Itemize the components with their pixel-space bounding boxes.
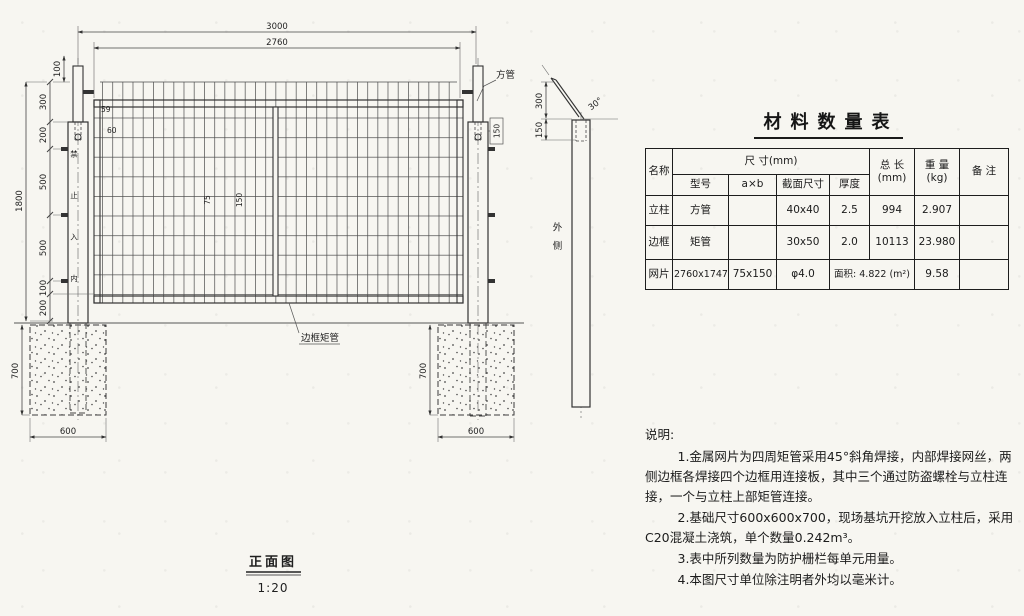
cell-axb [729,226,777,260]
concrete-footing-right [438,325,514,415]
outer-side-label: 外侧 [551,221,563,259]
dim-footing-depth-right: 700 [419,325,438,415]
anti-theft-bolt [488,213,495,217]
table-row: 边框 矩管 30x50 2.0 10113 23.980 [646,226,1009,260]
cell-remark [960,196,1009,226]
angled-top-arm [542,65,584,119]
cell-thickness: 2.0 [830,226,870,260]
dim-footing-width-right: 600 [438,418,514,442]
header-size-group: 尺 寸(mm) [673,149,870,175]
svg-text:600: 600 [60,427,76,437]
header-section: 截面尺寸 [777,175,830,196]
svg-text:1800: 1800 [15,190,25,212]
svg-text:150: 150 [535,122,545,138]
material-table: 名称 尺 寸(mm) 总 长 (mm) 重 量 (kg) 备 注 型号 a×b … [645,148,1009,290]
svg-text:100: 100 [39,280,49,296]
cell-section: 40x40 [777,196,830,226]
svg-text:600: 600 [468,427,484,437]
svg-text:200: 200 [39,127,49,143]
drawing-sheet: { "drawing": { "front_view": { "title": … [0,0,1024,616]
dim-side-angle: 30° [587,96,605,113]
view-title-block: 正面图 1:20 [246,555,301,595]
header-total-length: 总 长 (mm) [870,149,915,196]
dim-mesh-cell-height: 150 [235,193,244,208]
cell-total: 994 [870,196,915,226]
square-tube-label-text: 方管 [496,69,515,81]
header-weight: 重 量 (kg) [915,149,960,196]
frame-tube-label: 边框矩管 [289,303,340,344]
left-post-top-tube [73,66,83,122]
header-name: 名称 [646,149,673,196]
cell-area: 面积: 4.822 (m²) [830,260,915,290]
dim-footing-width-left: 600 [30,418,106,442]
plate-dim-150: 150 [488,118,503,144]
cell-axb: 75x150 [729,260,777,290]
cell-section: 30x50 [777,226,830,260]
anti-theft-bolt [488,147,495,151]
right-post-top-tube [473,66,483,122]
dim-left-chain: 300 200 500 500 100 200 [30,79,94,324]
dim-footing-depth-left: 700 [11,325,30,415]
center-stiffener-tube [273,107,278,296]
header-remark: 备 注 [960,149,1009,196]
svg-text:700: 700 [11,363,21,379]
dim-mesh-cell-width: 75 [203,195,212,205]
svg-text:700: 700 [419,363,429,379]
header-model: 型号 [673,175,729,196]
svg-text:2760: 2760 [266,38,288,48]
cell-model: 矩管 [673,226,729,260]
dim-side-arm: 300 [535,82,572,119]
cell-name: 立柱 [646,196,673,226]
header-axb: a×b [729,175,777,196]
side-post [572,120,590,407]
dim-plate-height: 150 [493,124,502,139]
svg-text:500: 500 [39,174,49,190]
cell-remark [960,226,1009,260]
side-view: 30° 300 150 外侧 [535,65,618,418]
frame-tube-label-text: 边框矩管 [301,332,339,344]
anti-theft-bolt [61,213,68,217]
svg-text:3000: 3000 [266,22,288,32]
post-marking-text: 禁止入内 [69,150,78,316]
svg-text:200: 200 [39,300,49,316]
svg-text:500: 500 [39,240,49,256]
anti-theft-bolt [61,279,68,283]
dim-offset-a: 59 [101,105,111,114]
svg-text:100: 100 [53,61,63,77]
svg-text:300: 300 [39,94,49,110]
top-connector [83,90,94,94]
cell-section: φ4.0 [777,260,830,290]
view-scale: 1:20 [258,581,289,595]
note-item-3: 3.表中所列数量为防护栅栏每单元用量。 [645,549,1017,569]
cell-axb [729,196,777,226]
cell-remark [960,260,1009,290]
dim-side-insert: 150 [535,119,576,140]
note-item-2: 2.基础尺寸600x600x700，现场基坑开挖放入立柱后，采用C20混凝土浇筑… [645,508,1017,548]
cell-model: 2760x1747 [673,260,729,290]
note-item-4: 4.本图尺寸单位除注明者外均以毫米计。 [645,570,1017,590]
notes-heading: 说明: [645,425,1017,445]
svg-text:300: 300 [535,93,545,109]
mesh-panel [94,82,463,303]
view-title: 正面图 [249,555,297,570]
header-weight-line2: (kg) [916,172,958,185]
notes-section: 说明: 1.金属网片为四周矩管采用45°斜角焊接，内部焊接网丝，两侧边框各焊接四… [645,424,1017,591]
table-row: 网片 2760x1747 75x150 φ4.0 面积: 4.822 (m²) … [646,260,1009,290]
concrete-footing-left [30,325,106,415]
cell-total: 10113 [870,226,915,260]
dim-top-offset: 100 [53,56,64,82]
cell-name: 边框 [646,226,673,260]
cell-model: 方管 [673,196,729,226]
cell-weight: 23.980 [915,226,960,260]
anti-theft-bolt [488,279,495,283]
header-thickness: 厚度 [830,175,870,196]
cell-thickness: 2.5 [830,196,870,226]
dim-offset-b: 60 [107,126,117,135]
top-connector [462,90,473,94]
header-total-length-line2: (mm) [871,172,913,185]
header-weight-line1: 重 量 [916,159,958,172]
material-table-panel: 材料数量表 名称 尺 寸(mm) 总 长 (mm) 重 量 (kg) 备 注 [645,108,1011,290]
cell-name: 网片 [646,260,673,290]
anti-theft-bolt [61,147,68,151]
material-table-title: 材料数量表 [754,108,903,139]
header-total-length-line1: 总 长 [871,159,913,172]
cell-weight: 9.58 [915,260,960,290]
note-item-1: 1.金属网片为四周矩管采用45°斜角焊接，内部焊接网丝，两侧边框各焊接四个边框用… [645,447,1017,507]
table-row: 立柱 方管 40x40 2.5 994 2.907 [646,196,1009,226]
cell-weight: 2.907 [915,196,960,226]
